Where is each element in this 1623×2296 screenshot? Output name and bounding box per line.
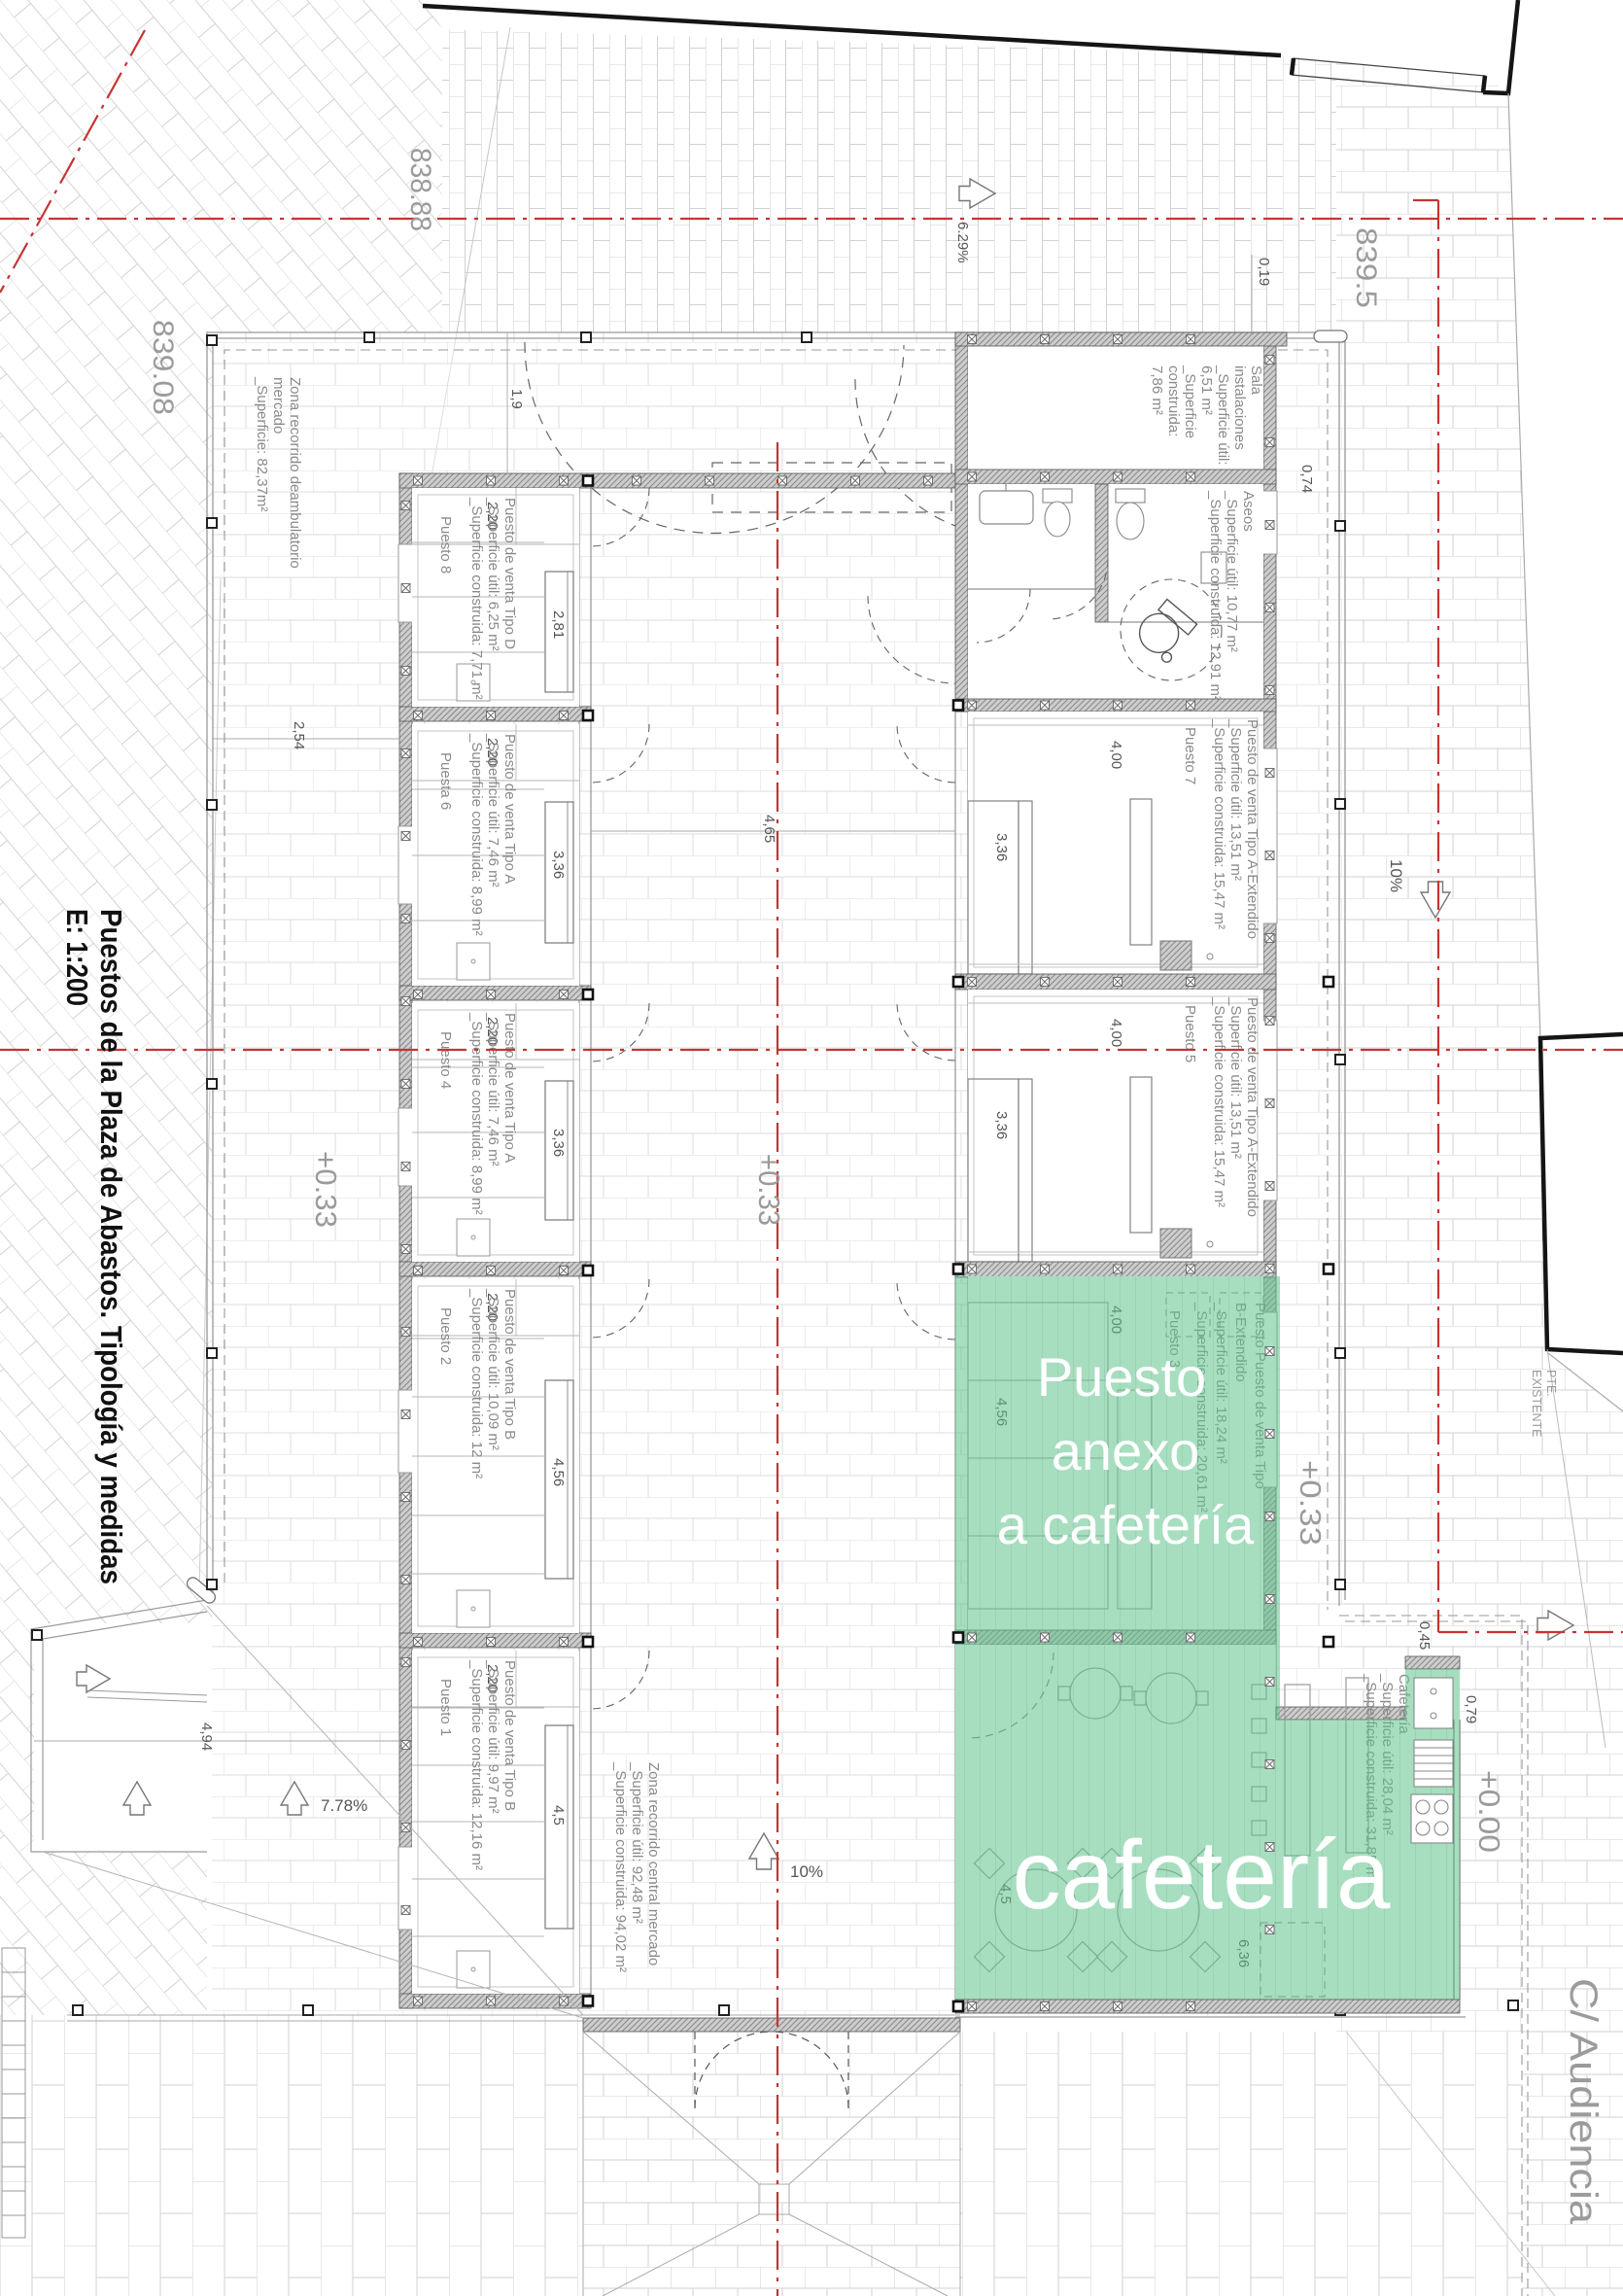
svg-text:_Superficie útil: 13,51 m²: _Superficie útil: 13,51 m²	[1227, 996, 1244, 1159]
svg-text:a cafetería: a cafetería	[997, 1494, 1255, 1555]
svg-text:_Superficie útil: 7,46 m²: _Superficie útil: 7,46 m²	[485, 1012, 501, 1166]
svg-text:4,65: 4,65	[761, 815, 777, 843]
svg-text:Puesto de venta Tipo A-Extendi: Puesto de venta Tipo A-Extendido	[1244, 719, 1260, 939]
svg-text:0,74: 0,74	[1298, 465, 1315, 493]
svg-text:Puesto 1: Puesto 1	[437, 1679, 454, 1736]
svg-text:6.29%: 6.29%	[954, 222, 971, 263]
svg-text:_Superficie construida: 8,99 m: _Superficie construida: 8,99 m²	[468, 1012, 485, 1215]
svg-text:10%: 10%	[790, 1862, 823, 1881]
svg-text:6,51 m²: 6,51 m²	[1198, 365, 1215, 415]
svg-text:_Superficie construida: 15,47: _Superficie construida: 15,47 m²	[1211, 996, 1227, 1207]
svg-text:cafetería: cafetería	[1012, 1821, 1390, 1930]
svg-text:Aseos: Aseos	[1240, 491, 1257, 532]
svg-text:C/ Audiencia: C/ Audiencia	[1562, 1978, 1605, 2225]
svg-text:construida:: construida:	[1165, 365, 1182, 436]
svg-text:_Superficie construida: 94,02: _Superficie construida: 94,02 m²	[612, 1761, 629, 1972]
svg-text:Sala: Sala	[1248, 365, 1264, 396]
svg-text:Puesto 2: Puesto 2	[437, 1307, 454, 1365]
svg-text:Zona recorrido central mercado: Zona recorrido central mercado	[645, 1762, 662, 1966]
svg-text:E: 1:200: E: 1:200	[60, 909, 94, 1006]
svg-text:3,36: 3,36	[550, 1129, 567, 1157]
svg-text:_Superficie útil: 9,97 m²: _Superficie útil: 9,97 m²	[485, 1659, 501, 1814]
svg-text:_Superficie construida: 15,47: _Superficie construida: 15,47 m²	[1211, 718, 1227, 929]
svg-text:Puesto de venta Tipo D: Puesto de venta Tipo D	[501, 498, 518, 649]
svg-text:_Superficie útil: 10,09 m²: _Superficie útil: 10,09 m²	[485, 1288, 501, 1450]
svg-text:0,45: 0,45	[1416, 1621, 1433, 1650]
svg-text:_Superficie construida: 12 m²: _Superficie construida: 12 m²	[468, 1288, 485, 1478]
svg-text:Puesto de venta Tipo B: Puesto de venta Tipo B	[501, 1289, 518, 1440]
svg-text:anexo: anexo	[1052, 1420, 1200, 1481]
svg-text:Puesto: Puesto	[1037, 1346, 1206, 1408]
svg-text:_Superficie construida: 12,16: _Superficie construida: 12,16 m²	[468, 1659, 485, 1870]
svg-text:1,9: 1,9	[508, 389, 525, 409]
svg-text:Puesto de venta Tipo A: Puesto de venta Tipo A	[501, 1013, 518, 1163]
svg-text:10%: 10%	[1387, 859, 1405, 892]
svg-text:mercado: mercado	[270, 377, 287, 434]
svg-text:Puesto 7: Puesto 7	[1182, 727, 1198, 784]
svg-text:838.88: 838.88	[404, 148, 436, 231]
svg-text:4,94: 4,94	[198, 1722, 215, 1751]
svg-text:Zona recorrido deambulatorio: Zona recorrido deambulatorio	[287, 377, 303, 569]
svg-text:_Superficie útil: 13,51 m²: _Superficie útil: 13,51 m²	[1227, 718, 1244, 881]
svg-text:_Superficie útil:: _Superficie útil:	[1215, 365, 1231, 466]
svg-text:0,79: 0,79	[1463, 1695, 1479, 1723]
svg-text:instalaciones: instalaciones	[1231, 365, 1248, 450]
svg-text:_Superficie: _Superficie	[1182, 365, 1198, 438]
svg-text:2,81: 2,81	[550, 610, 567, 639]
svg-text:7.78%: 7.78%	[321, 1796, 367, 1815]
svg-text:_Superficie construida: 7,71 m: _Superficie construida: 7,71 m²	[468, 497, 485, 700]
svg-text:0,19: 0,19	[1256, 258, 1272, 286]
svg-text:4,5: 4,5	[550, 1805, 567, 1826]
svg-text:_Superficie útil: 10,77 m²: _Superficie útil: 10,77 m²	[1224, 490, 1240, 652]
svg-text:_Superficie construida: 12,91: _Superficie construida: 12,91 m²	[1207, 490, 1224, 701]
svg-text:+0.33: +0.33	[1294, 1460, 1328, 1546]
svg-text:_Superficie útil: 6,25 m²: _Superficie útil: 6,25 m²	[485, 497, 501, 651]
svg-text:4,56: 4,56	[550, 1458, 567, 1486]
svg-text:3,36: 3,36	[550, 851, 567, 879]
svg-text:_Superficie útil: 92,48 m²: _Superficie útil: 92,48 m²	[629, 1761, 645, 1924]
svg-text:2,54: 2,54	[291, 721, 307, 749]
svg-text:3,36: 3,36	[993, 833, 1010, 861]
svg-text:Puesto 4: Puesto 4	[437, 1031, 454, 1089]
svg-text:7,86 m²: 7,86 m²	[1149, 365, 1165, 415]
svg-text:PTE.: PTE.	[1544, 1370, 1558, 1397]
svg-text:Puesto de venta Tipo A: Puesto de venta Tipo A	[501, 734, 518, 884]
svg-text:+0.33: +0.33	[309, 1151, 343, 1228]
svg-text:4,00: 4,00	[1108, 741, 1124, 769]
svg-text:839.5: 839.5	[1350, 227, 1382, 308]
svg-text:+0.33: +0.33	[752, 1154, 786, 1226]
svg-text:_Superficie útil: 7,46 m²: _Superficie útil: 7,46 m²	[485, 733, 501, 887]
svg-text:Puestos de la Plaza de Abastos: Puestos de la Plaza de Abastos. Tipologí…	[94, 909, 128, 1584]
svg-text:EXISTENTE: EXISTENTE	[1530, 1370, 1543, 1437]
svg-text:Puesto de venta Tipo B: Puesto de venta Tipo B	[501, 1660, 518, 1811]
svg-text:4,00: 4,00	[1108, 1019, 1124, 1047]
svg-text:Puesto 5: Puesto 5	[1182, 1005, 1198, 1062]
svg-text:+0.00: +0.00	[1472, 1770, 1506, 1853]
svg-text:_Superficie: 82,37m²: _Superficie: 82,37m²	[254, 376, 270, 511]
svg-text:_Superficie construida: 8,99 m: _Superficie construida: 8,99 m²	[468, 733, 485, 936]
svg-text:Puesto 8: Puesto 8	[437, 516, 454, 574]
svg-text:Puesto de venta Tipo A-Extendi: Puesto de venta Tipo A-Extendido	[1244, 997, 1260, 1217]
svg-text:839.08: 839.08	[147, 320, 179, 415]
svg-text:3,36: 3,36	[993, 1111, 1010, 1139]
svg-text:Puesta 6: Puesta 6	[437, 752, 454, 810]
